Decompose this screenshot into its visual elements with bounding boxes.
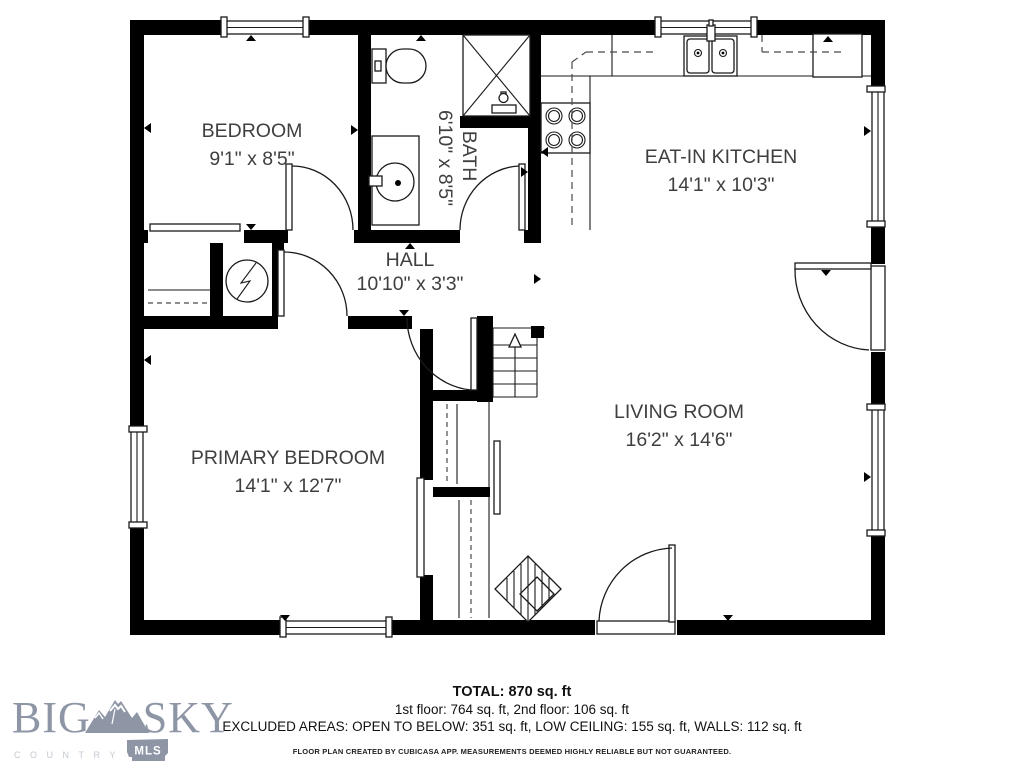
closet-door — [407, 318, 477, 390]
mls-badge: MLS — [127, 739, 169, 767]
mls-badge-label: MLS — [134, 746, 161, 758]
logo-word-sky: SKY — [143, 698, 234, 738]
mountain-icon — [84, 698, 150, 740]
bath-dims: 6'10" x 8'5" — [434, 110, 456, 206]
floor-furnace-icon — [495, 556, 561, 622]
shower-icon — [463, 35, 530, 116]
kitchen-dims: 14'1" x 10'3" — [668, 174, 775, 196]
living-room-window — [867, 404, 885, 536]
cabinet — [813, 34, 862, 77]
kitchen-label: EAT-IN KITCHEN — [645, 146, 797, 168]
primary-bedroom-label: PRIMARY BEDROOM — [191, 447, 385, 469]
hall-label: HALL — [386, 249, 435, 271]
living-room-label: LIVING ROOM — [614, 401, 744, 423]
bath-label: BATH — [458, 131, 480, 182]
toilet-icon — [372, 49, 426, 83]
living-room-dims: 16'2" x 14'6" — [626, 429, 733, 451]
bathroom-sink-icon — [369, 136, 419, 225]
closet-sliding-door — [494, 441, 500, 514]
floorplan-page: BEDROOM 9'1" x 8'5" BATH 6'10" x 8'5" EA… — [0, 0, 1024, 768]
kitchen-side-window — [867, 86, 885, 227]
stairs-icon — [493, 326, 545, 397]
floor-plan: BEDROOM 9'1" x 8'5" BATH 6'10" x 8'5" EA… — [0, 0, 1024, 680]
stove-icon — [541, 103, 590, 153]
big-sky-logo: BIG SKY COUNTRY MLS — [12, 696, 212, 768]
side-entry-door — [795, 263, 885, 350]
primary-bedroom-side-window — [129, 426, 147, 528]
closet-sliding-door — [417, 478, 424, 577]
bedroom-door — [286, 164, 353, 230]
bedroom-dims: 9'1" x 8'5" — [209, 148, 294, 170]
primary-bedroom-dims: 14'1" x 12'7" — [235, 475, 342, 497]
logo-word-big: BIG — [12, 698, 91, 738]
water-heater-icon — [226, 260, 268, 302]
bedroom-label: BEDROOM — [202, 120, 303, 142]
hall-dims: 10'10" x 3'3" — [357, 273, 464, 295]
primary-bedroom-door — [278, 250, 347, 316]
front-entry-door — [597, 545, 675, 634]
logo-country-text: COUNTRY — [14, 750, 125, 760]
